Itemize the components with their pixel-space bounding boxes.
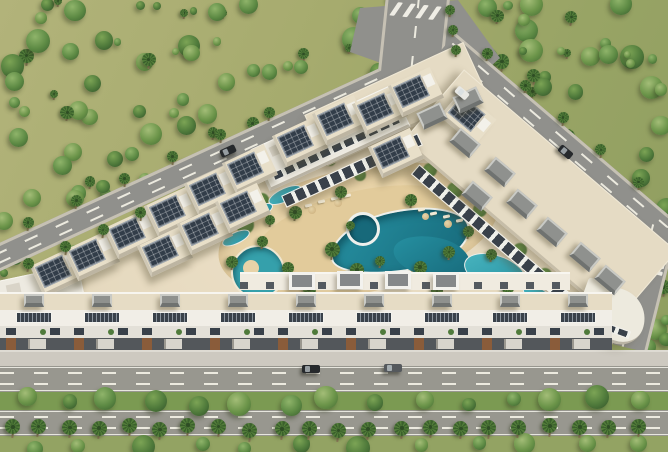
- car-windshield: [560, 147, 568, 155]
- car: [302, 365, 320, 373]
- car-windshield: [457, 88, 465, 96]
- vehicles-layer: [0, 0, 668, 452]
- car-windshield: [305, 366, 310, 372]
- aerial-site-plan-render: [0, 0, 668, 452]
- car-windshield: [222, 148, 229, 156]
- car: [557, 144, 574, 160]
- car-windshield: [387, 365, 392, 371]
- car: [454, 85, 470, 100]
- car: [219, 144, 237, 158]
- car: [384, 364, 402, 372]
